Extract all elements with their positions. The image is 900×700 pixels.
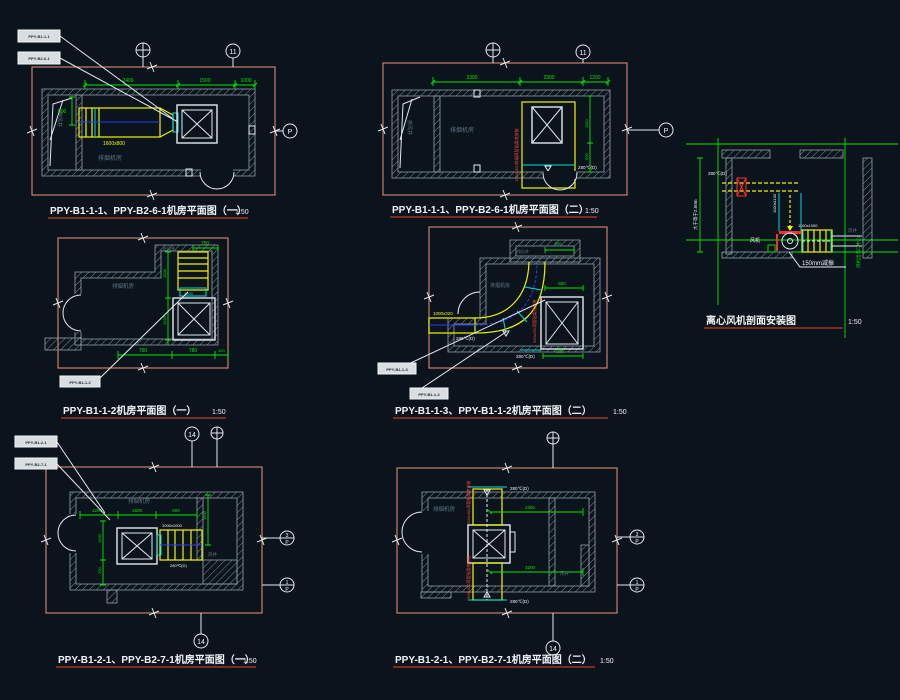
room-walls xyxy=(75,245,218,345)
shaft-hatch xyxy=(581,545,589,586)
damper-label: 280℃(D) xyxy=(510,599,529,604)
wall-stub xyxy=(421,592,451,598)
damper-label: 280℃(D) xyxy=(510,486,529,491)
structure-slabs xyxy=(722,150,872,258)
shaft-box xyxy=(173,298,215,340)
room-label: 排烟机房 xyxy=(112,282,135,290)
grid-bubble-num: 3 xyxy=(636,532,639,538)
grid-bubble-11: 11 xyxy=(229,49,236,56)
fan-base xyxy=(768,231,801,252)
plan-d: 2500 750 760 780 100 1500 1250 排烟机房 进风井 … xyxy=(45,233,233,418)
grid-bubble-p: P xyxy=(664,128,669,135)
door xyxy=(58,514,77,553)
room-label: 排烟机房 xyxy=(98,154,122,162)
shaft-label: 排风井 xyxy=(406,120,413,135)
damper-label: 280℃(D) xyxy=(578,165,597,170)
dimension-lines xyxy=(69,80,257,125)
plan-g-title: PPY-B1-2-1、PPY-B2-7-1机房平面图（二） xyxy=(395,653,592,666)
plan-g: 14 3 P 1 P 280℃(D) 280℃(D) 500x400风管贴梁底安… xyxy=(392,432,644,667)
plan-f-title: PPY-B1-2-1、PPY-B2-7-1机房平面图（一） xyxy=(58,653,255,666)
dim-label: 1500 xyxy=(132,508,143,513)
damper-label: 280℃(D) xyxy=(170,563,187,568)
tag-text: PPY-B1-2-1 xyxy=(25,440,47,445)
motor-unit xyxy=(802,230,832,252)
duct-size-label: 1600x800 xyxy=(103,141,125,147)
cad-sheet: 11 P 排风井 排烟机房 1600x800 2400 1500 1000 50… xyxy=(0,0,900,700)
shaft-box xyxy=(117,528,157,564)
shaft-box xyxy=(468,525,515,563)
flow-arrow-icon xyxy=(787,226,793,231)
height-dim-label: 大于等于2.50m xyxy=(692,199,699,230)
connector-label: 2500 xyxy=(184,291,194,296)
duct-note-red: 1250x400排烟风管贴梁底安装 xyxy=(513,128,519,182)
dim-label: 900 xyxy=(556,349,564,354)
section-c-scale: 1:50 xyxy=(848,319,862,326)
dim-label: 1200 xyxy=(589,75,600,81)
duct-run xyxy=(429,262,545,350)
shaft-box xyxy=(541,297,583,349)
grid-bubble-num: 3 xyxy=(286,533,289,539)
wall-niches xyxy=(474,90,480,172)
dim-label: 100 xyxy=(218,348,225,353)
dim-label: 500 xyxy=(584,153,589,160)
dim-label: 700 xyxy=(97,567,102,574)
plan-a: 11 P 排风井 排烟机房 1600x800 2400 1500 1000 50… xyxy=(18,30,297,218)
horizontal-duct xyxy=(722,183,800,191)
dim-label: 1500 xyxy=(162,268,167,278)
damper-label: 280℃(D) xyxy=(516,354,535,359)
fan-label: 风机 xyxy=(750,237,760,244)
wall-stub xyxy=(107,590,117,603)
plan-f: 14 14 3 P 1 P 1000x1000 280℃(D) 1200 150… xyxy=(15,427,294,667)
plan-e-title: PPY-B1-1-3、PPY-B1-1-2机房平面图（二） xyxy=(395,404,592,417)
duct-note-red: 500x400风管贴梁底安装 xyxy=(465,556,471,599)
grid-bubble-p: P xyxy=(288,129,293,136)
door xyxy=(63,294,82,332)
plan-b-title: PPY-B1-1-1、PPY-B2-6-1机房平面图（二） xyxy=(392,203,589,216)
dim-label: 1500 xyxy=(199,78,210,84)
partition-wall xyxy=(434,96,440,172)
grid-bubble-num: 1 xyxy=(286,580,289,586)
plan-f-scale: 1:50 xyxy=(243,658,257,665)
grid-bubble-14: 14 xyxy=(197,639,205,646)
door xyxy=(458,292,480,314)
tag-text: PPY-B1-1-2 xyxy=(69,380,91,385)
dim-label: 750 xyxy=(201,241,210,247)
dim-label: 800 xyxy=(558,281,566,286)
plan-e-scale: 1:50 xyxy=(613,409,627,416)
vibration-note: 150mm减振 xyxy=(802,259,834,267)
room-label: 排烟机房 xyxy=(433,505,456,513)
plan-e: 排风井 500 1000x320 280℃(D) 280℃(D) 320x250… xyxy=(378,222,627,418)
shaft-label: 风井 xyxy=(560,570,569,577)
grid-bubble-num: 1 xyxy=(636,580,639,586)
grid-bubble-14: 14 xyxy=(188,432,196,439)
partition-wall xyxy=(549,498,555,586)
fan-unit xyxy=(157,530,202,560)
plan-g-scale: 1:50 xyxy=(600,658,614,665)
plan-f-frame xyxy=(46,467,262,613)
plan-a-scale: 1:50 xyxy=(235,209,249,216)
plan-b-scale: 1:50 xyxy=(585,208,599,215)
dim-label: 780 xyxy=(189,348,198,354)
dim-label: 1100 xyxy=(584,119,589,128)
duct-size-label: 1100x1100 xyxy=(772,193,777,213)
room-label: 排烟机房 xyxy=(450,126,474,134)
tag-text: PPY-B1-1-1 xyxy=(28,34,50,39)
dim-label: 2300 xyxy=(543,75,554,81)
centrifugal-fan xyxy=(782,233,798,249)
plan-d-title: PPY-B1-1-2机房平面图（一） xyxy=(63,404,196,417)
dim-label: 1500 xyxy=(202,510,207,520)
grid-bubble-14: 14 xyxy=(549,646,557,653)
shaft-label: 风井 xyxy=(208,551,217,558)
dim-label: 760 xyxy=(139,348,148,354)
shaft-hatch xyxy=(203,560,237,584)
door xyxy=(402,511,429,554)
door xyxy=(543,171,577,190)
shaft-label: 排风井 xyxy=(517,248,529,254)
section-c-title: 离心风机剖面安装图 xyxy=(706,314,796,327)
shaft-box xyxy=(532,107,562,143)
duct-note-red: 500x400风管贴梁底安装 xyxy=(465,481,471,524)
centerline-label: 风机出风口中心 xyxy=(855,236,862,268)
dim-label: 1000 xyxy=(240,78,251,84)
plan-d-scale: 1:50 xyxy=(212,409,226,416)
duct-size-label: 1100x1000 xyxy=(798,223,818,228)
dim-label: 600 xyxy=(172,508,180,513)
grid-bubble-11: 11 xyxy=(579,50,586,57)
inlet-label: 进风井 xyxy=(163,245,175,251)
fire-damper-section xyxy=(737,178,746,196)
dim-label: 500 xyxy=(58,109,67,115)
vertical-ducts xyxy=(468,487,507,600)
dim-label: 3300 xyxy=(466,75,477,81)
shaft-box xyxy=(177,105,217,143)
dim-label: 3200 xyxy=(525,565,536,570)
damper-label: 280℃(D) xyxy=(708,171,727,176)
duct-size-label: 1000x320 xyxy=(433,311,453,316)
tag-text: PPY-B2-6-1 xyxy=(28,56,50,61)
wall-stub xyxy=(45,338,81,350)
section-c: 280℃(D) 1100x1100 风机 1100x1000 风井 大于等于2.… xyxy=(686,138,898,338)
shaft-dim-line xyxy=(545,247,574,253)
room-label: 排烟机房 xyxy=(128,497,151,505)
plan-b: 11 P 排风井 排烟机房 280℃(D) 1250x400排烟风管贴梁底安装 … xyxy=(378,43,673,217)
dim-label: 2300 xyxy=(525,505,536,510)
tag-text: PPY-B2-7-1 xyxy=(25,462,47,467)
room-label: 排烟机房 xyxy=(490,282,510,289)
drawing-area: 11 P 排风井 排烟机房 1600x800 2400 1500 1000 50… xyxy=(0,0,900,700)
air-shaft-label: 风井 xyxy=(848,227,857,234)
room-walls xyxy=(42,89,255,176)
fan-size-label: 1000x1000 xyxy=(162,523,183,528)
tag-text: PPY-B1-1-2 xyxy=(418,392,440,397)
fan-unit xyxy=(79,108,178,137)
door xyxy=(200,168,234,189)
tag-text: PPY-B1-1-3 xyxy=(386,367,408,372)
plan-a-title: PPY-B1-1-1、PPY-B2-6-1机房平面图（一） xyxy=(50,204,247,217)
fan-unit xyxy=(178,252,208,296)
dim-label: 1500 xyxy=(97,533,102,543)
dim-label: 500 xyxy=(555,241,562,246)
